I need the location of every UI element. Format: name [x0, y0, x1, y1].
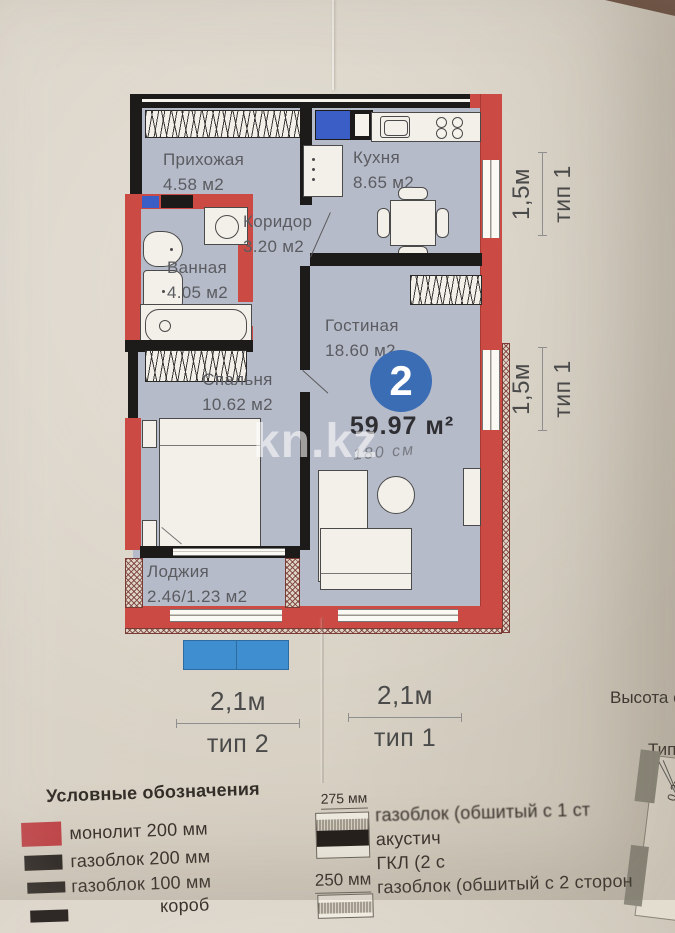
wardrobe-hatch-living: [410, 275, 482, 305]
side-height-note: Высота о: [610, 688, 675, 708]
window-living: [338, 609, 458, 622]
blue-marker-rect: [183, 640, 289, 670]
blue-marker-divider: [236, 641, 237, 669]
wall-corridor-living: [300, 266, 310, 370]
room-label-kitchen: Кухня 8.65 м2: [353, 146, 463, 195]
wall-top: [131, 94, 485, 108]
nightstand-2: [142, 520, 157, 548]
kitchen-cabinet: [303, 145, 343, 197]
dimension-line: [538, 347, 547, 431]
bed-pillow-line: [160, 445, 260, 446]
nightstand-1: [142, 420, 157, 448]
room-name: Кухня: [353, 146, 463, 171]
room-name: Ванная: [167, 256, 277, 281]
dimension-type: тип 1: [340, 724, 470, 753]
coffee-table-round: [377, 476, 415, 514]
paper-crease-top: [332, 0, 334, 90]
shaft-box: [351, 110, 373, 140]
dimension-bottom-2: 2,1м тип 1: [340, 680, 470, 753]
stove: [434, 115, 470, 139]
vent-shaft-blue-bath: [142, 196, 159, 208]
wall-bedroom-left: [125, 418, 141, 550]
wardrobe-hatch-hallway: [145, 110, 305, 138]
room-name: Гостиная: [325, 314, 455, 339]
dimension-type: тип 2: [168, 730, 308, 759]
apartment-number: 2: [389, 357, 412, 405]
wall-type-275-swatch: [315, 811, 370, 858]
floor-plan: Прихожая 4.58 м2 Кухня 8.65 м2 Коридор 3…: [125, 88, 510, 635]
washing-machine-drum: [215, 215, 239, 239]
loggia-hatch-left: [125, 558, 143, 608]
room-label-bathroom: Ванная 4.05 м2: [167, 256, 277, 305]
dimension-right-2: 1,5м тип 1: [508, 339, 576, 439]
legend: Условные обозначения монолит 200 мм газо…: [6, 773, 321, 924]
room-label-bedroom: Спальня 10.62 м2: [180, 368, 295, 417]
legend-label-monolith: монолит 200 мм: [69, 818, 208, 844]
sink-basin: [384, 120, 408, 136]
dimension-bottom-1: 2,1м тип 2: [168, 686, 308, 759]
photo-of-floor-plan: { "watermark": "kn.kz", "plan": { "rooms…: [0, 0, 675, 900]
dimension-line: [176, 719, 300, 728]
room-area: 4.05 м2: [167, 281, 277, 306]
dimension-line: [538, 152, 547, 236]
bed-fold-line: [161, 527, 182, 544]
kitchen-counter: [371, 112, 481, 142]
wall-type-250-size: 250 мм: [315, 869, 372, 893]
room-name: Прихожая: [163, 148, 293, 173]
dimension-right-1: 1,5м тип 1: [508, 144, 576, 244]
room-name: Коридор: [243, 210, 353, 235]
photo-corner-dark: [605, 0, 675, 16]
dimension-length: 1,5м: [508, 144, 536, 244]
legend-label-gasblock-200: газоблок 200 мм: [70, 846, 211, 872]
window-right-1: [482, 160, 500, 238]
chair-right: [436, 208, 449, 238]
room-name: Спальня: [180, 368, 295, 393]
legend-swatch-gasblock-200: [24, 855, 63, 871]
legend-swatch-gasblock-100: [27, 881, 65, 893]
room-label-loggia: Лоджия 2.46/1.23 м2: [147, 560, 297, 609]
sofa-seat-line: [321, 573, 411, 574]
legend-wall-types: 275 мм газоблок (обшитый с 1 ст акустич …: [310, 775, 675, 915]
swatch-layer-hatch: [318, 901, 372, 913]
tv-stand: [463, 468, 481, 526]
room-area: 4.58 м2: [163, 173, 293, 198]
sofa-horizontal: [320, 528, 412, 590]
dimension-length: 1,5м: [508, 339, 536, 439]
washing-machine: [204, 207, 248, 245]
dimension-length: 2,1м: [168, 686, 308, 717]
bathtub-drain: [159, 320, 171, 332]
wall-type-250-swatch: [317, 893, 374, 918]
wall-bedroom-left-top: [128, 352, 138, 420]
room-label-hallway: Прихожая 4.58 м2: [163, 148, 293, 197]
room-label-corridor: Коридор 3.20 м2: [243, 210, 353, 259]
wall-exterior-hatch-bottom: [125, 628, 502, 634]
watermark: kn.kz: [253, 414, 433, 469]
dimension-type: тип 1: [549, 339, 576, 439]
chair-left: [377, 208, 390, 238]
shaft-box-inner: [355, 114, 369, 136]
room-area: 8.65 м2: [353, 171, 463, 196]
bed: [159, 418, 261, 550]
legend-title: Условные обозначения: [46, 779, 260, 807]
room-name: Лоджия: [147, 560, 297, 585]
legend-swatch-duct: [30, 909, 68, 922]
dimension-type: тип 1: [549, 144, 576, 244]
sink: [380, 116, 410, 138]
legend-swatch-monolith: [21, 822, 62, 847]
swatch-layer-black: [317, 829, 369, 846]
apartment-number-badge: 2: [370, 350, 432, 412]
dining-table: [390, 200, 436, 246]
vent-shaft-blue: [315, 110, 351, 140]
dimension-length: 2,1м: [340, 680, 470, 711]
paper-crease-bottom: [322, 618, 324, 783]
wall-type-275-size: 275 мм: [321, 790, 368, 810]
window-loggia: [170, 609, 282, 622]
dimension-line: [348, 713, 462, 722]
wall-left-top: [130, 94, 142, 206]
legend-label-gasblock-100: газоблок 100 мм: [71, 871, 212, 897]
wall-bath-left: [125, 209, 141, 349]
window-balcony-door: [173, 548, 285, 556]
room-area: 2.46/1.23 м2: [147, 585, 297, 610]
legend-label-duct: короб: [160, 894, 210, 917]
